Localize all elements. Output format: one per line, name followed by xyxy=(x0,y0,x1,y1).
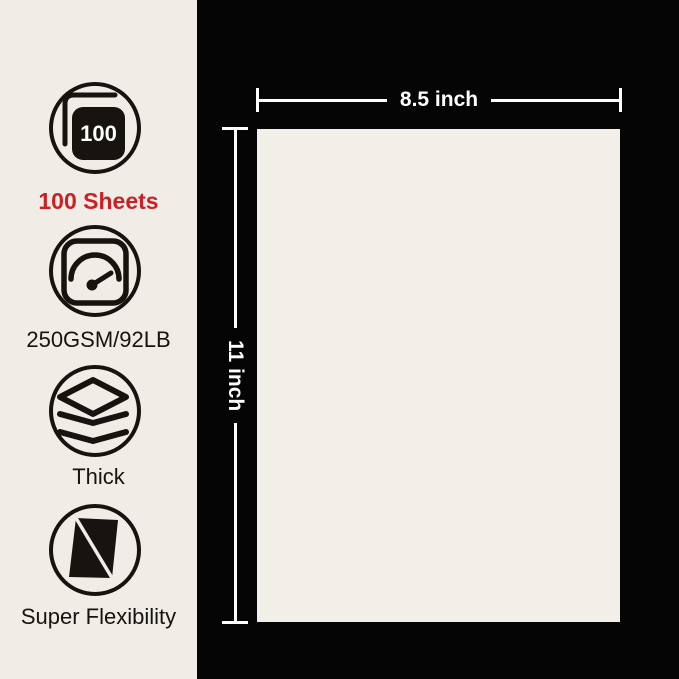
dimension-endcap xyxy=(619,88,622,112)
gauge-icon xyxy=(48,224,142,318)
feature-label-weight: 250GSM/92LB xyxy=(0,327,197,353)
height-dimension-label: 11 inch xyxy=(222,328,248,423)
paper-sheet xyxy=(257,129,620,622)
feature-label-sheets: 100 Sheets xyxy=(0,188,197,215)
dimension-endcap xyxy=(222,621,248,624)
dimension-line xyxy=(491,99,619,102)
product-infographic: 100 100 Sheets 250GSM/92LB Thick xyxy=(0,0,679,679)
dimension-line xyxy=(234,423,237,621)
feature-panel: 100 100 Sheets 250GSM/92LB Thick xyxy=(0,0,197,679)
feature-label-flexibility: Super Flexibility xyxy=(0,604,197,630)
width-dimension: 8.5 inch xyxy=(256,88,622,112)
height-dimension: 11 inch xyxy=(222,127,248,624)
sheet-count-icon: 100 xyxy=(48,81,142,175)
width-dimension-label: 8.5 inch xyxy=(387,88,491,112)
bent-sheet-icon xyxy=(48,503,142,597)
dimension-line xyxy=(234,130,237,328)
sheet-count-badge: 100 xyxy=(80,121,117,146)
dimension-line xyxy=(259,99,387,102)
feature-label-thick: Thick xyxy=(0,464,197,490)
layers-icon xyxy=(48,364,142,458)
